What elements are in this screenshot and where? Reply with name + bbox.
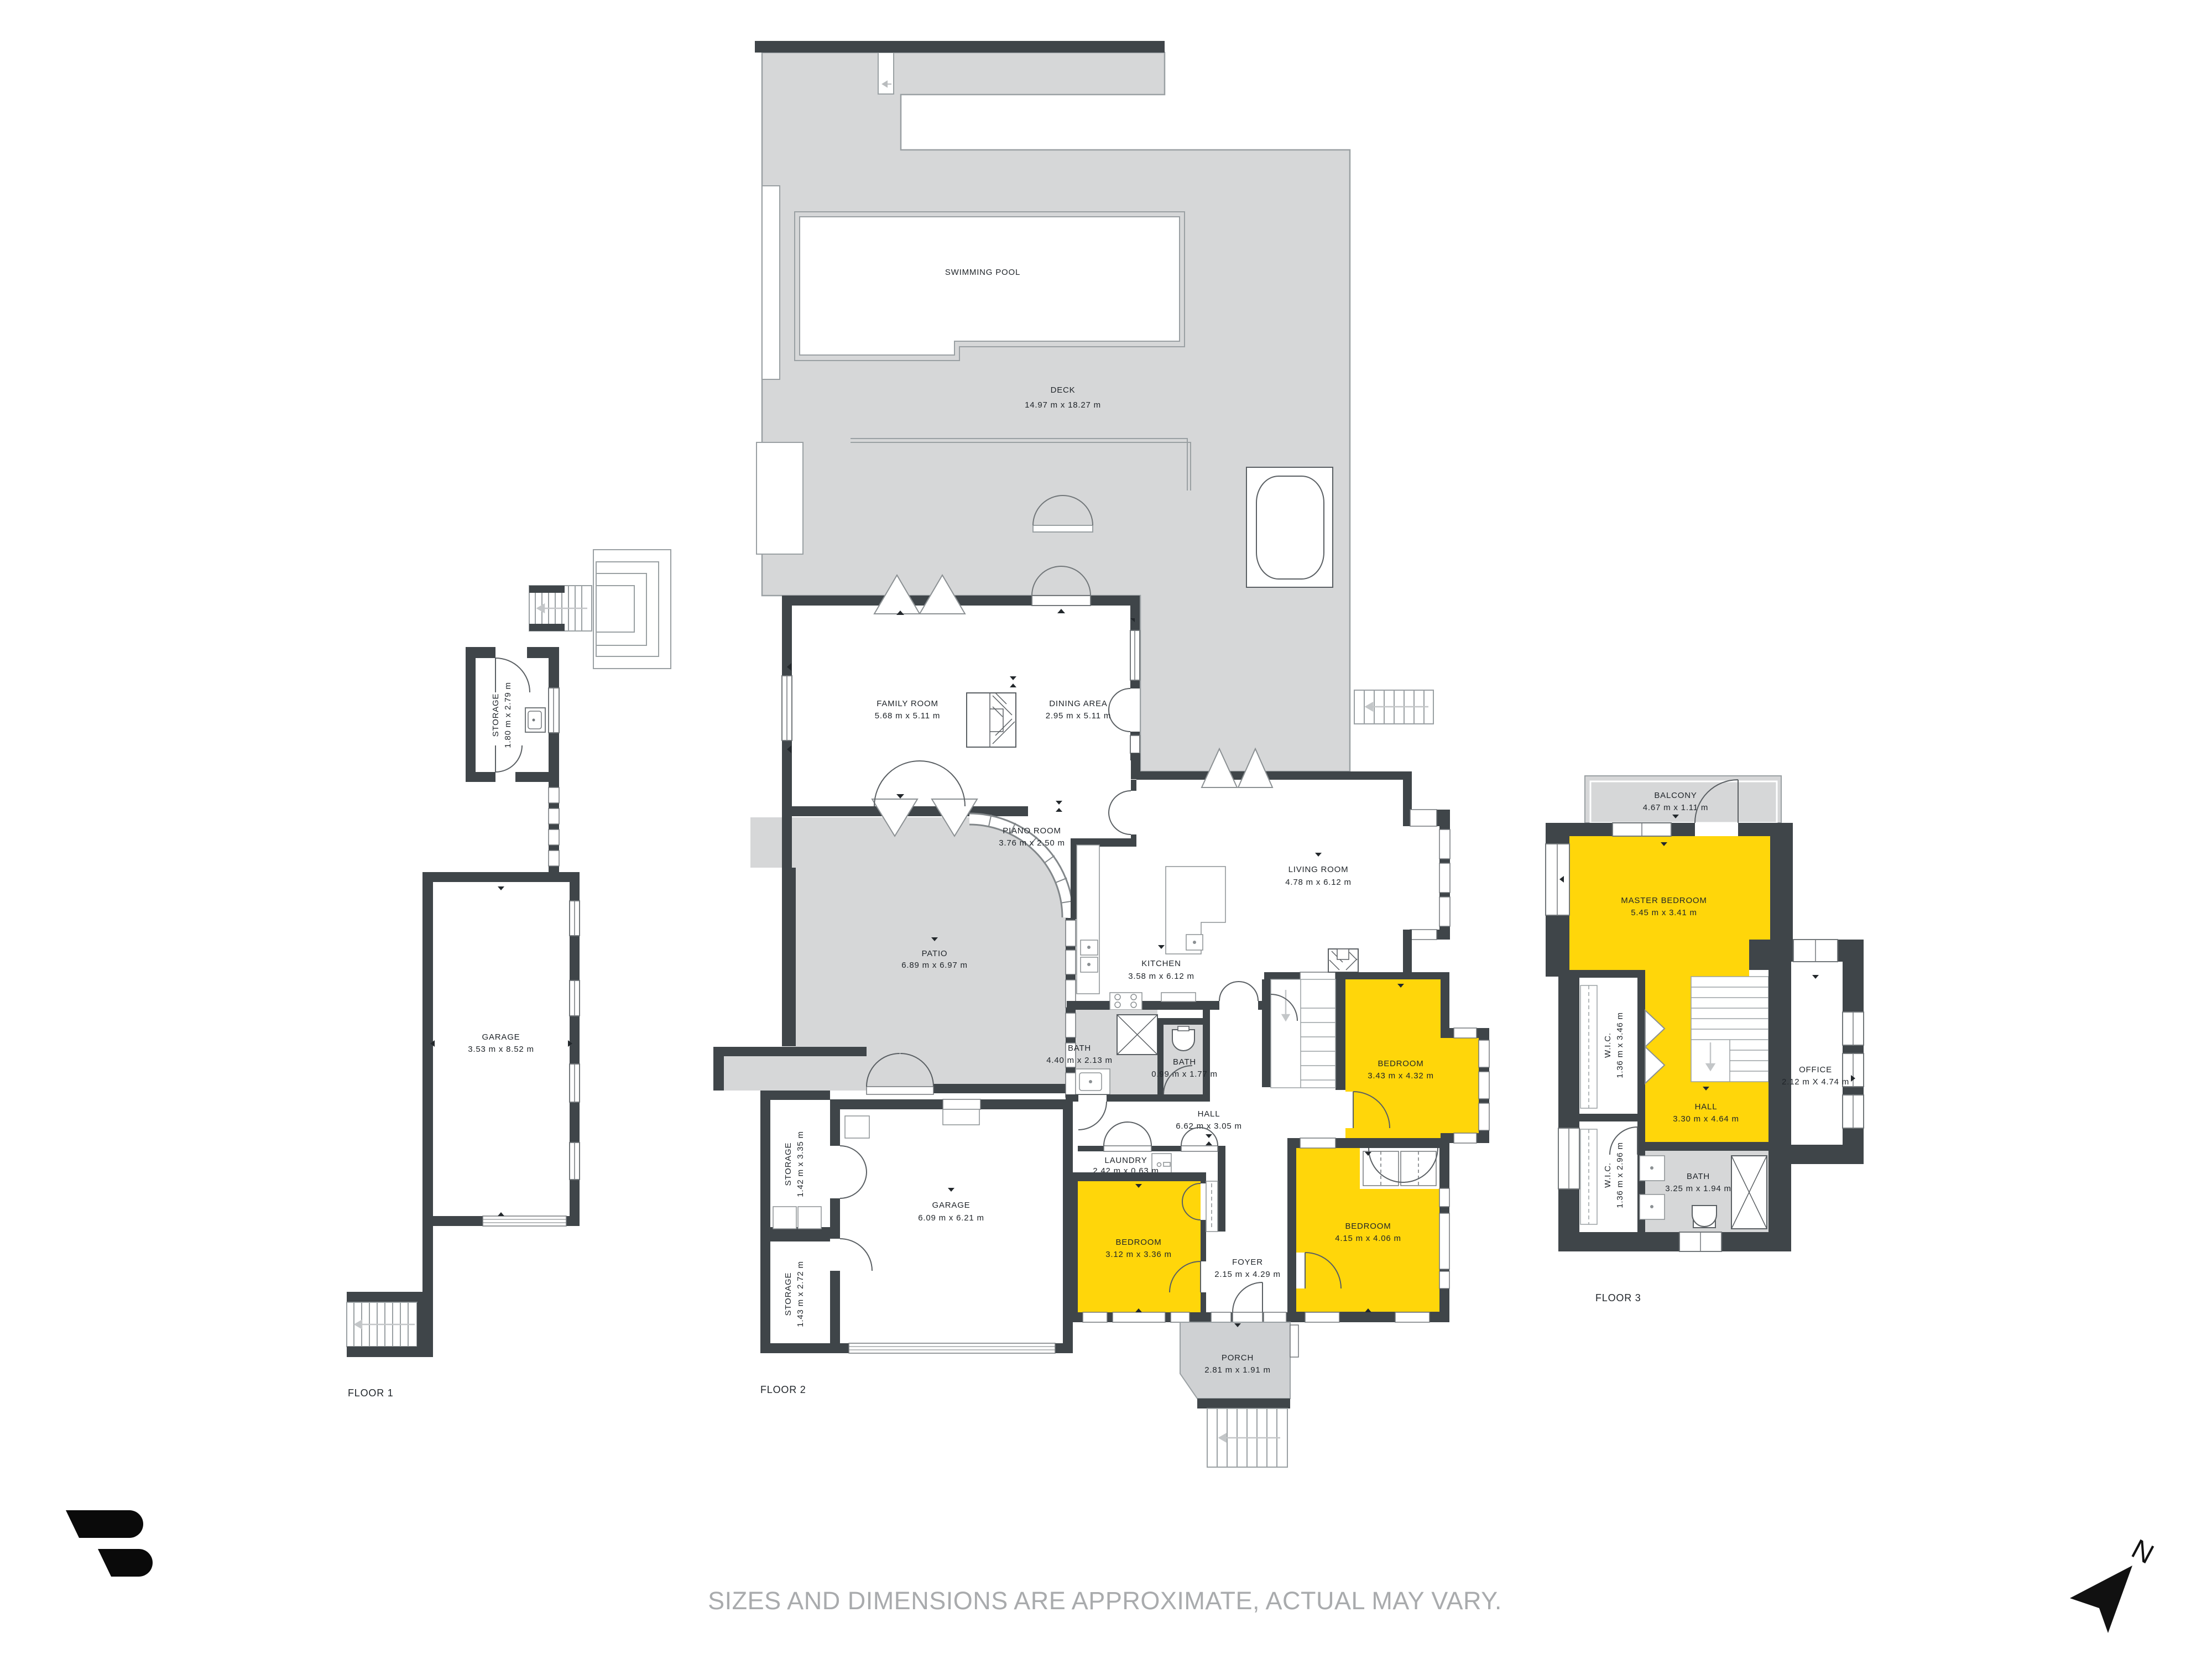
- svg-text:2.81 m x 1.91 m: 2.81 m x 1.91 m: [1204, 1365, 1271, 1375]
- svg-text:1.80 m x 2.79 m: 1.80 m x 2.79 m: [503, 682, 513, 748]
- svg-text:3.25 m x 1.94 m: 3.25 m x 1.94 m: [1665, 1184, 1731, 1193]
- svg-text:BALCONY: BALCONY: [1654, 791, 1697, 800]
- svg-text:HALL: HALL: [1695, 1102, 1718, 1112]
- svg-text:BEDROOM: BEDROOM: [1345, 1222, 1391, 1231]
- svg-text:BATH: BATH: [1173, 1057, 1196, 1067]
- svg-text:FAMILY ROOM: FAMILY ROOM: [877, 699, 938, 708]
- svg-text:5.68 m x 5.11 m: 5.68 m x 5.11 m: [875, 711, 940, 721]
- svg-text:1.36 m x 2.96 m: 1.36 m x 2.96 m: [1615, 1142, 1625, 1208]
- svg-text:OFFICE: OFFICE: [1799, 1065, 1832, 1074]
- svg-text:PORCH: PORCH: [1222, 1353, 1254, 1363]
- svg-text:6.89 m x 6.97 m: 6.89 m x 6.97 m: [901, 961, 968, 970]
- svg-text:1.36 m x 3.46 m: 1.36 m x 3.46 m: [1615, 1012, 1625, 1078]
- svg-text:2.95 m x 5.11 m: 2.95 m x 5.11 m: [1046, 711, 1111, 721]
- svg-text:LAUNDRY: LAUNDRY: [1104, 1156, 1147, 1165]
- svg-text:3.58 m x 6.12 m: 3.58 m x 6.12 m: [1128, 972, 1194, 981]
- svg-text:3.53 m x 8.52 m: 3.53 m x 8.52 m: [468, 1045, 534, 1054]
- svg-text:1.42 m x 3.35 m: 1.42 m x 3.35 m: [796, 1131, 805, 1197]
- svg-text:BEDROOM: BEDROOM: [1115, 1238, 1161, 1247]
- svg-text:GARAGE: GARAGE: [482, 1032, 520, 1042]
- svg-text:FLOOR 2: FLOOR 2: [760, 1384, 806, 1395]
- svg-text:14.97 m x 18.27 m: 14.97 m x 18.27 m: [1025, 400, 1101, 410]
- svg-text:4.78 m x 6.12 m: 4.78 m x 6.12 m: [1285, 878, 1352, 887]
- svg-text:DECK: DECK: [1051, 385, 1076, 395]
- svg-text:5.45 m x 3.41 m: 5.45 m x 3.41 m: [1631, 908, 1697, 917]
- svg-text:STORAGE: STORAGE: [784, 1142, 793, 1186]
- svg-text:PIANO ROOM: PIANO ROOM: [1003, 826, 1061, 836]
- svg-text:1.43 m x 2.72 m: 1.43 m x 2.72 m: [796, 1261, 805, 1327]
- svg-text:HALL: HALL: [1198, 1109, 1220, 1119]
- svg-text:W.I.C.: W.I.C.: [1603, 1162, 1613, 1188]
- svg-text:SIZES AND DIMENSIONS ARE APPRO: SIZES AND DIMENSIONS ARE APPROXIMATE, AC…: [708, 1587, 1502, 1615]
- svg-text:GARAGE: GARAGE: [932, 1201, 971, 1210]
- svg-text:3.43 m x 4.32 m: 3.43 m x 4.32 m: [1368, 1071, 1434, 1081]
- svg-text:2.12 m X 4.74 m: 2.12 m X 4.74 m: [1782, 1077, 1849, 1087]
- svg-text:3.76 m x 2.50 m: 3.76 m x 2.50 m: [999, 838, 1065, 848]
- svg-text:FOYER: FOYER: [1232, 1258, 1263, 1267]
- svg-text:PATIO: PATIO: [922, 949, 948, 958]
- svg-text:STORAGE: STORAGE: [491, 693, 500, 737]
- svg-text:4.15 m x 4.06 m: 4.15 m x 4.06 m: [1335, 1234, 1401, 1243]
- svg-text:MASTER BEDROOM: MASTER BEDROOM: [1621, 896, 1707, 905]
- svg-text:FLOOR 1: FLOOR 1: [348, 1387, 394, 1399]
- svg-text:SWIMMING POOL: SWIMMING POOL: [945, 268, 1020, 277]
- svg-text:6.09 m x 6.21 m: 6.09 m x 6.21 m: [918, 1213, 984, 1223]
- svg-text:3.12 m x 3.36 m: 3.12 m x 3.36 m: [1105, 1250, 1172, 1259]
- svg-text:6.62 m x 3.05 m: 6.62 m x 3.05 m: [1176, 1121, 1242, 1131]
- svg-text:4.40 m x 2.13 m: 4.40 m x 2.13 m: [1046, 1056, 1113, 1065]
- svg-text:STORAGE: STORAGE: [784, 1272, 793, 1316]
- svg-text:3.30 m x 4.64 m: 3.30 m x 4.64 m: [1673, 1114, 1739, 1124]
- svg-text:BATH: BATH: [1687, 1172, 1710, 1181]
- svg-text:2.15 m x 4.29 m: 2.15 m x 4.29 m: [1214, 1270, 1281, 1279]
- svg-text:KITCHEN: KITCHEN: [1141, 959, 1181, 968]
- svg-text:LIVING ROOM: LIVING ROOM: [1288, 865, 1349, 874]
- svg-text:0.99 m x 1.77 m: 0.99 m x 1.77 m: [1151, 1070, 1218, 1079]
- svg-text:BEDROOM: BEDROOM: [1378, 1059, 1423, 1068]
- svg-text:W.I.C.: W.I.C.: [1603, 1032, 1613, 1058]
- svg-text:BATH: BATH: [1068, 1044, 1091, 1053]
- svg-text:FLOOR 3: FLOOR 3: [1595, 1292, 1641, 1303]
- svg-text:DINING AREA: DINING AREA: [1049, 699, 1108, 708]
